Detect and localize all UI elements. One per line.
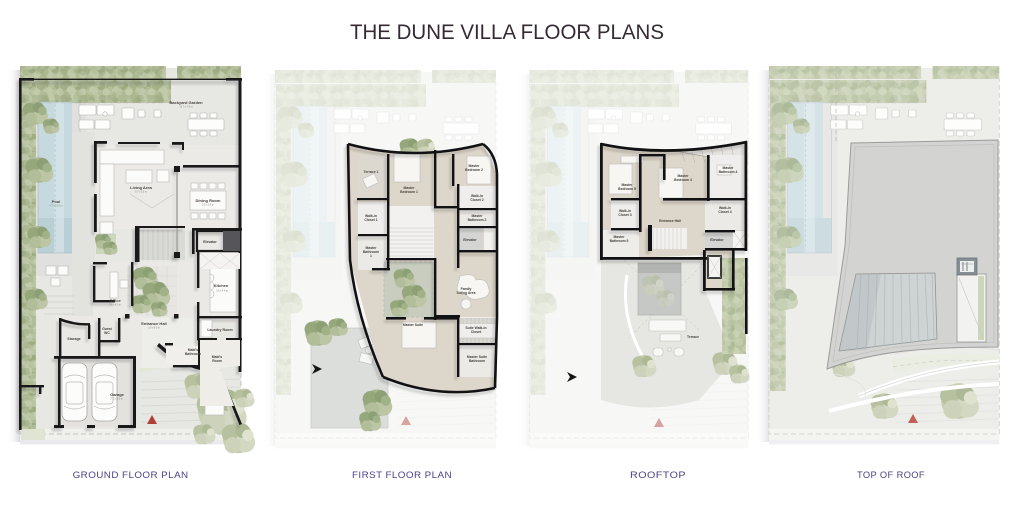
svg-text:Room: Room: [212, 359, 222, 363]
svg-text:Dining Room: Dining Room: [196, 198, 221, 203]
svg-text:Kitchen: Kitchen: [214, 283, 229, 288]
svg-text:Bedroom 2: Bedroom 2: [465, 168, 483, 172]
svg-text:5.7 x 5.5 m: 5.7 x 5.5 m: [135, 191, 147, 194]
svg-text:Closet: Closet: [471, 330, 482, 334]
svg-text:Terrace: Terrace: [687, 335, 699, 339]
svg-text:Bedroom 5: Bedroom 5: [618, 187, 636, 191]
svg-text:Closet 4: Closet 4: [718, 210, 731, 214]
svg-text:Entrance Hall: Entrance Hall: [141, 321, 167, 326]
svg-text:Entrance Hall: Entrance Hall: [659, 219, 681, 223]
svg-text:Garage: Garage: [110, 392, 125, 397]
svg-text:3.6 x 6.0 m: 3.6 x 6.0 m: [148, 327, 160, 330]
svg-text:5.5 x 3.9 m: 5.5 x 3.9 m: [202, 204, 214, 207]
svg-text:THE DUNE VILLA FLOOR PLANS: THE DUNE VILLA FLOOR PLANS: [350, 20, 664, 44]
svg-text:7.5 x 5.6 m: 7.5 x 5.6 m: [111, 398, 123, 401]
svg-text:WC: WC: [104, 331, 110, 335]
svg-text:Elevator: Elevator: [203, 240, 217, 244]
svg-text:TOP OF ROOF: TOP OF ROOF: [857, 470, 925, 480]
svg-text:Elevator: Elevator: [710, 238, 724, 242]
svg-text:Bathroom 2: Bathroom 2: [468, 218, 487, 222]
svg-text:Bathroom: Bathroom: [469, 359, 485, 363]
svg-text:Master Suite: Master Suite: [403, 323, 423, 327]
svg-text:Sitting Area: Sitting Area: [457, 291, 476, 295]
svg-text:10.7 x 7.0 m: 10.7 x 7.0 m: [179, 106, 192, 109]
svg-text:Closet 2: Closet 2: [470, 198, 483, 202]
svg-text:Living Area: Living Area: [130, 185, 152, 190]
svg-text:Storage: Storage: [67, 337, 80, 341]
svg-text:Bedroom 4: Bedroom 4: [674, 178, 692, 182]
svg-text:Bathroom: Bathroom: [185, 352, 201, 356]
svg-text:3.6 x 4.5 m: 3.6 x 4.5 m: [109, 304, 121, 307]
svg-text:1: 1: [370, 254, 372, 258]
svg-text:4.7 x 15.6 m: 4.7 x 15.6 m: [49, 205, 62, 208]
svg-text:Bathroom 4: Bathroom 4: [719, 170, 738, 174]
svg-text:Terrace 1: Terrace 1: [364, 170, 379, 174]
svg-text:FIRST FLOOR PLAN: FIRST FLOOR PLAN: [352, 470, 452, 480]
svg-text:Laundry Room: Laundry Room: [207, 328, 232, 332]
svg-text:Backyard Garden: Backyard Garden: [169, 100, 203, 105]
svg-text:ROOFTOP: ROOFTOP: [630, 470, 686, 480]
svg-text:Closet 3: Closet 3: [618, 213, 631, 217]
svg-text:Office: Office: [109, 298, 121, 303]
svg-text:Elevator: Elevator: [463, 238, 477, 242]
svg-text:3.6 x 4.4 m: 3.6 x 4.4 m: [216, 290, 228, 293]
svg-text:GROUND FLOOR PLAN: GROUND FLOOR PLAN: [73, 470, 189, 480]
svg-text:Pool: Pool: [52, 199, 61, 204]
svg-text:Bathroom 5: Bathroom 5: [610, 239, 629, 243]
svg-text:Closet 1: Closet 1: [364, 218, 377, 222]
svg-text:Bedroom 1: Bedroom 1: [400, 190, 418, 194]
